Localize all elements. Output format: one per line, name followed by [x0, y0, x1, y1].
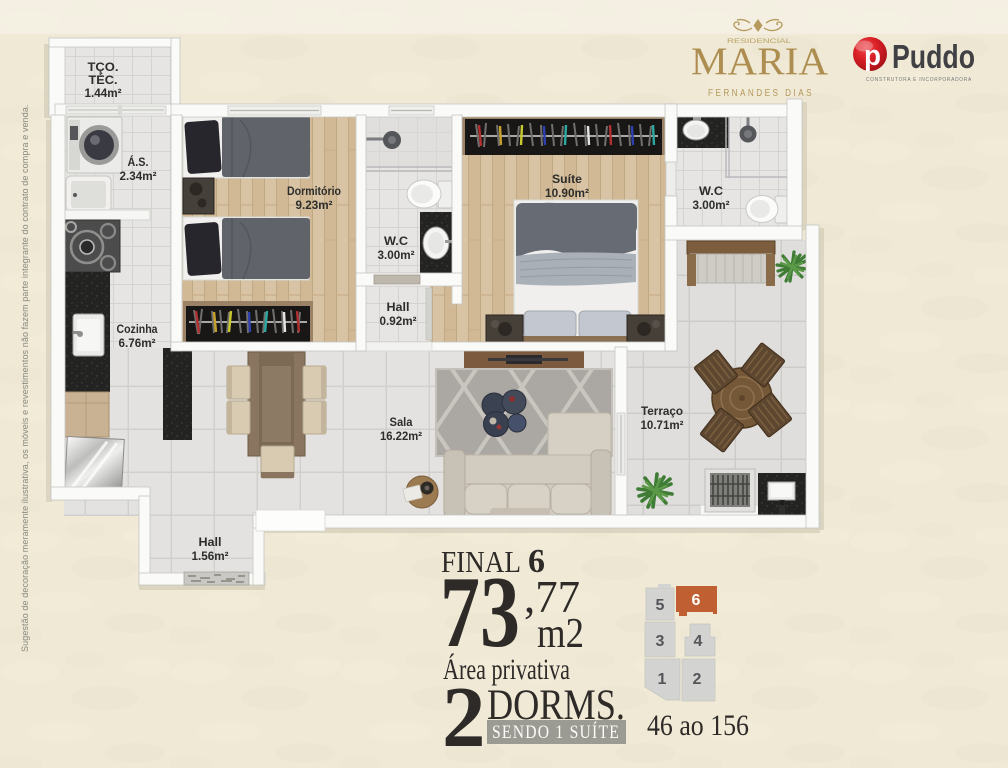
svg-text:Cozinha: Cozinha [117, 322, 158, 336]
svg-text:W.C: W.C [384, 234, 408, 248]
svg-text:9.23m²: 9.23m² [296, 198, 333, 212]
svg-text:1.56m²: 1.56m² [192, 549, 229, 563]
svg-text:W.C: W.C [699, 184, 723, 198]
svg-text:Terraço: Terraço [641, 404, 683, 418]
svg-text:5: 5 [656, 597, 665, 614]
svg-text:3: 3 [656, 633, 665, 650]
svg-text:2.34m²: 2.34m² [120, 169, 157, 183]
svg-text:p: p [864, 40, 881, 72]
svg-text:Dormitório: Dormitório [287, 184, 341, 198]
svg-text:Sala: Sala [390, 415, 413, 429]
svg-text:2: 2 [693, 671, 702, 688]
svg-text:4: 4 [694, 633, 703, 650]
svg-text:Hall: Hall [199, 535, 222, 549]
svg-text:Suíte: Suíte [552, 172, 582, 186]
svg-text:6: 6 [692, 592, 701, 609]
svg-text:Hall: Hall [387, 300, 410, 314]
svg-text:m2: m2 [537, 611, 584, 657]
svg-text:TÉC.: TÉC. [89, 72, 118, 87]
svg-text:1: 1 [658, 671, 667, 688]
svg-text:CONSTRUTORA E INCORPORADORA: CONSTRUTORA E INCORPORADORA [866, 77, 972, 83]
svg-text:Á.S.: Á.S. [128, 154, 149, 169]
svg-text:6.76m²: 6.76m² [119, 336, 156, 350]
svg-text:0.92m²: 0.92m² [380, 314, 417, 328]
svg-text:FERNANDES DIAS: FERNANDES DIAS [708, 88, 814, 99]
svg-text:3.00m²: 3.00m² [693, 198, 730, 212]
svg-text:TÇO.: TÇO. [88, 60, 119, 74]
svg-text:10.90m²: 10.90m² [545, 186, 589, 200]
svg-text:Puddo: Puddo [892, 38, 975, 75]
svg-text:SENDO 1 SUÍTE: SENDO 1 SUÍTE [492, 721, 620, 743]
svg-text:2: 2 [442, 668, 486, 765]
svg-text:MARIA: MARIA [691, 40, 828, 83]
svg-text:Sugestão de decoração merament: Sugestão de decoração meramente ilustrat… [20, 104, 30, 652]
svg-text:16.22m²: 16.22m² [380, 429, 422, 443]
svg-text:3.00m²: 3.00m² [378, 248, 415, 262]
svg-text:10.71m²: 10.71m² [641, 418, 684, 432]
svg-text:1.44m²: 1.44m² [85, 86, 122, 100]
svg-text:46 ao 156: 46 ao 156 [647, 709, 749, 742]
